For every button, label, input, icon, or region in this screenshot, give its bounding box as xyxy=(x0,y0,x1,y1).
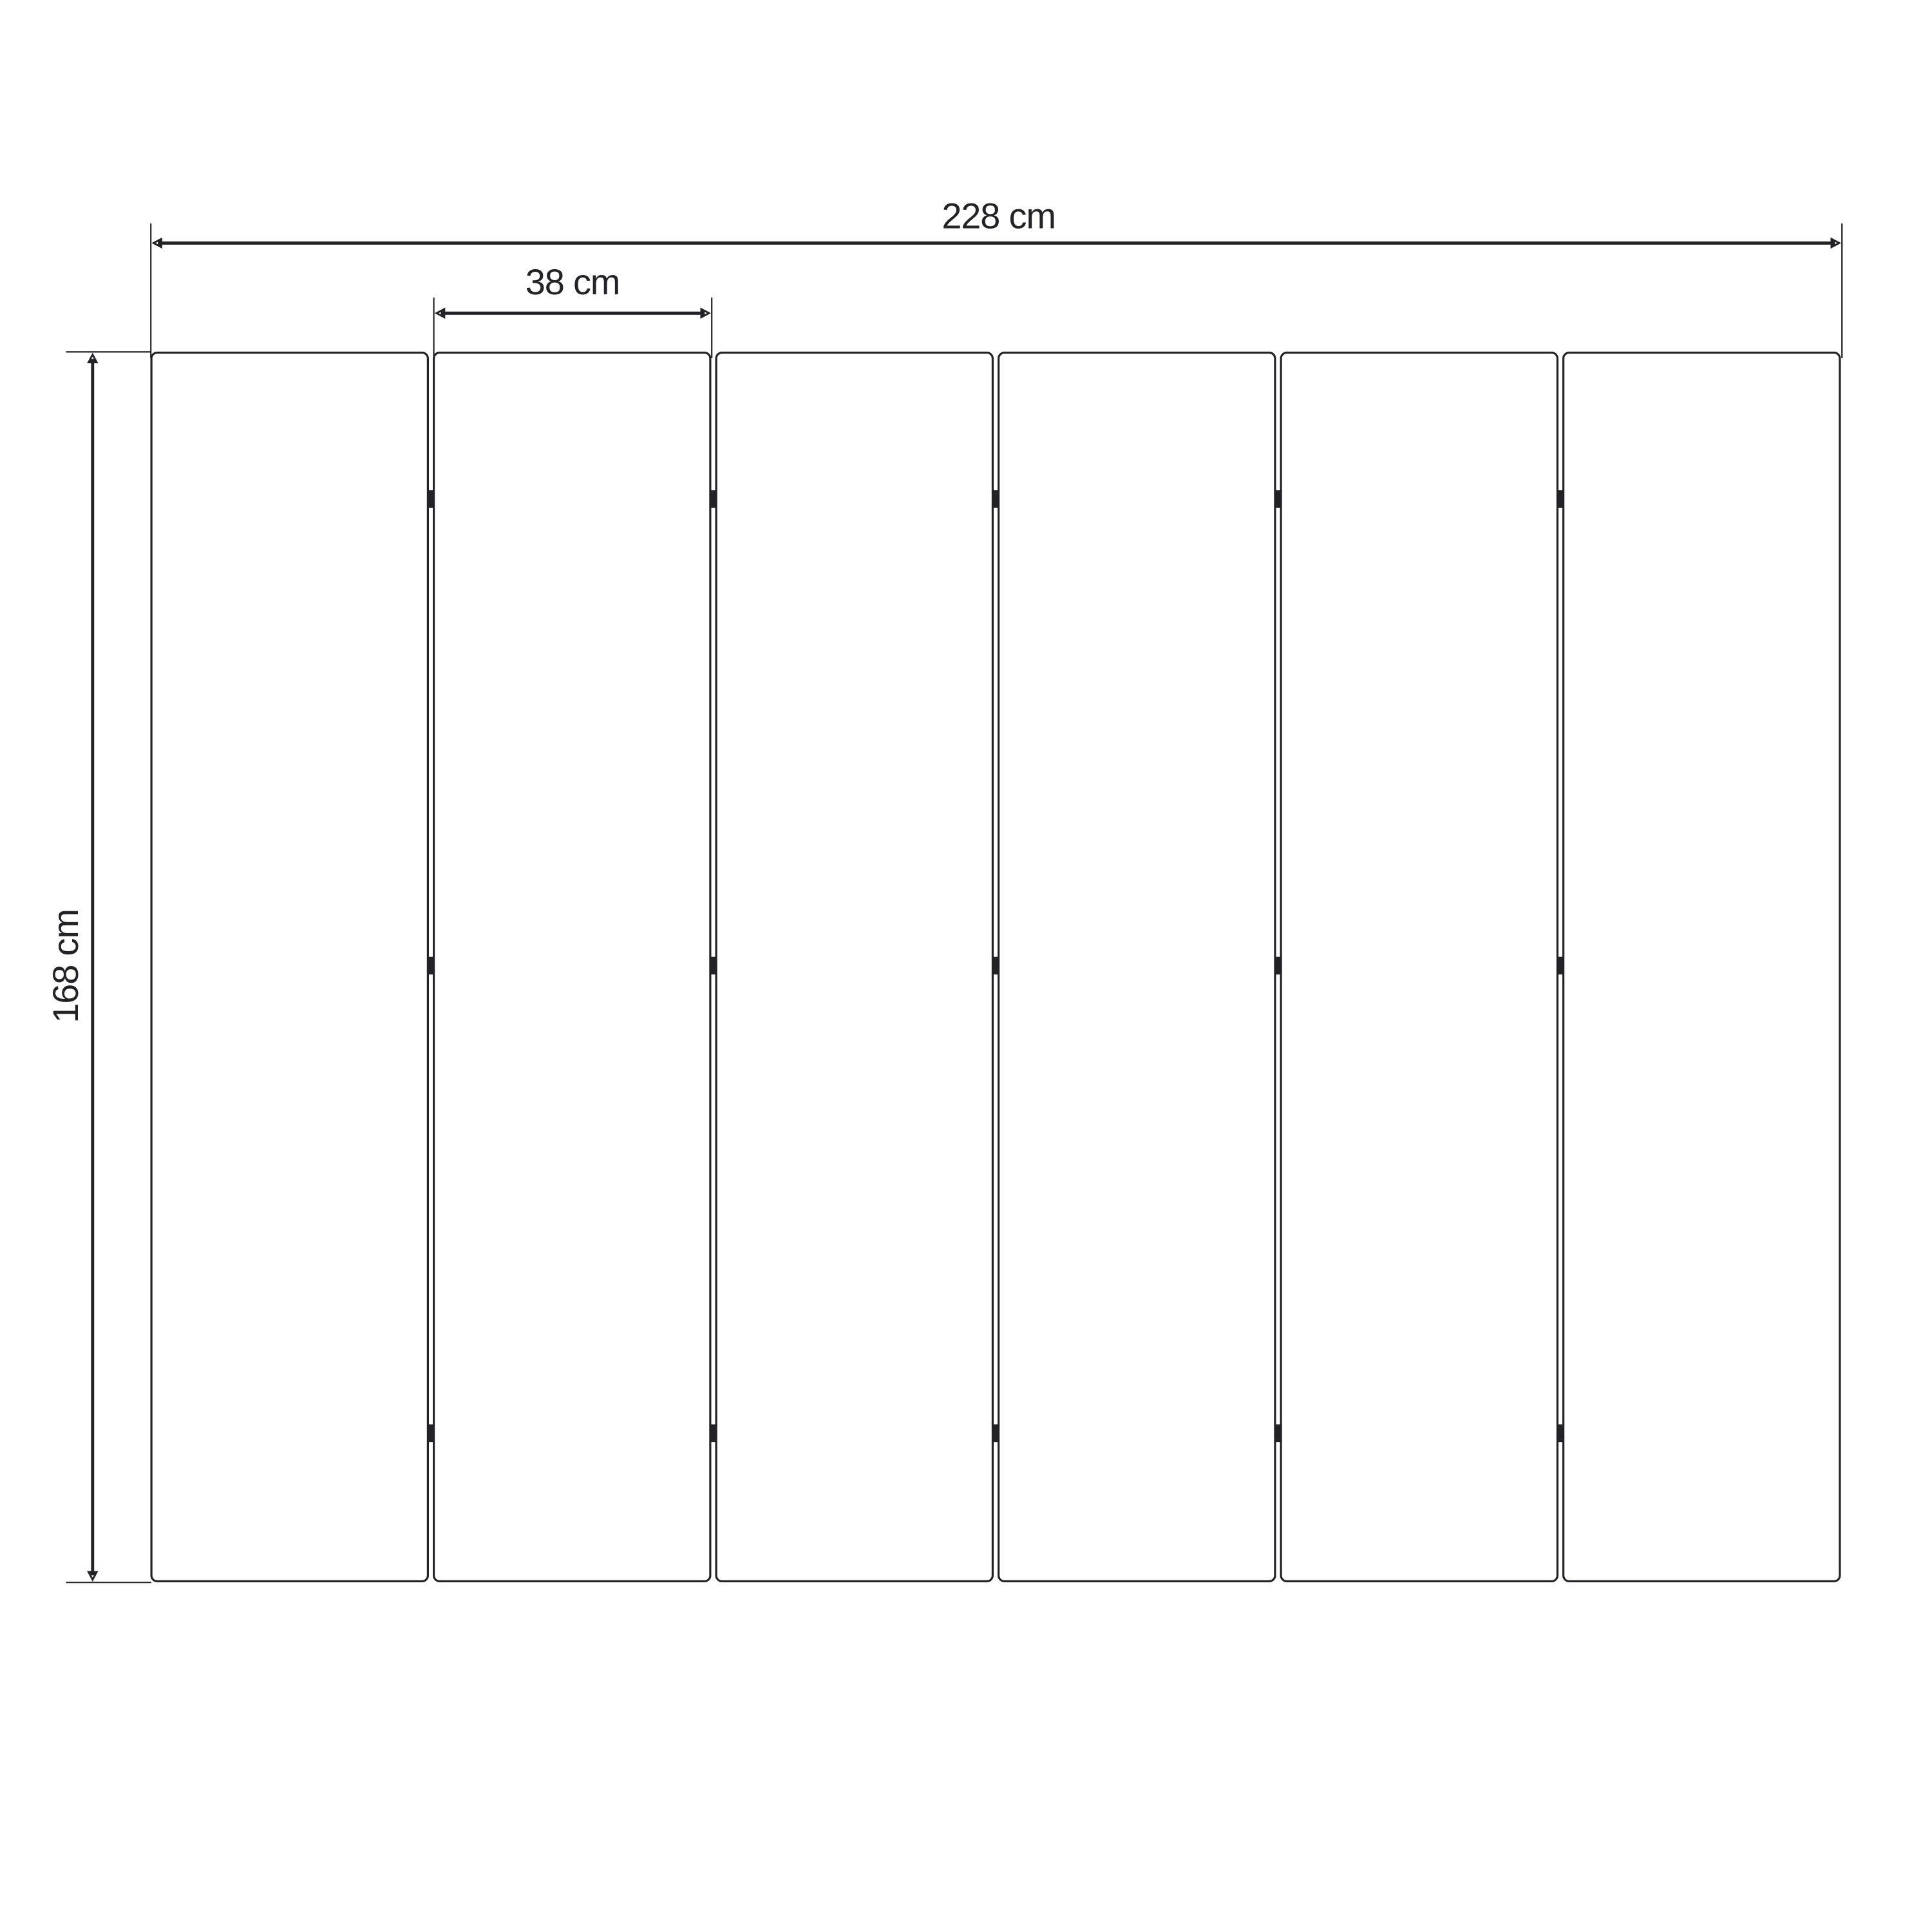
svg-text:168 cm: 168 cm xyxy=(45,909,86,1023)
svg-text:38 cm: 38 cm xyxy=(526,261,620,302)
svg-text:228 cm: 228 cm xyxy=(942,196,1055,236)
